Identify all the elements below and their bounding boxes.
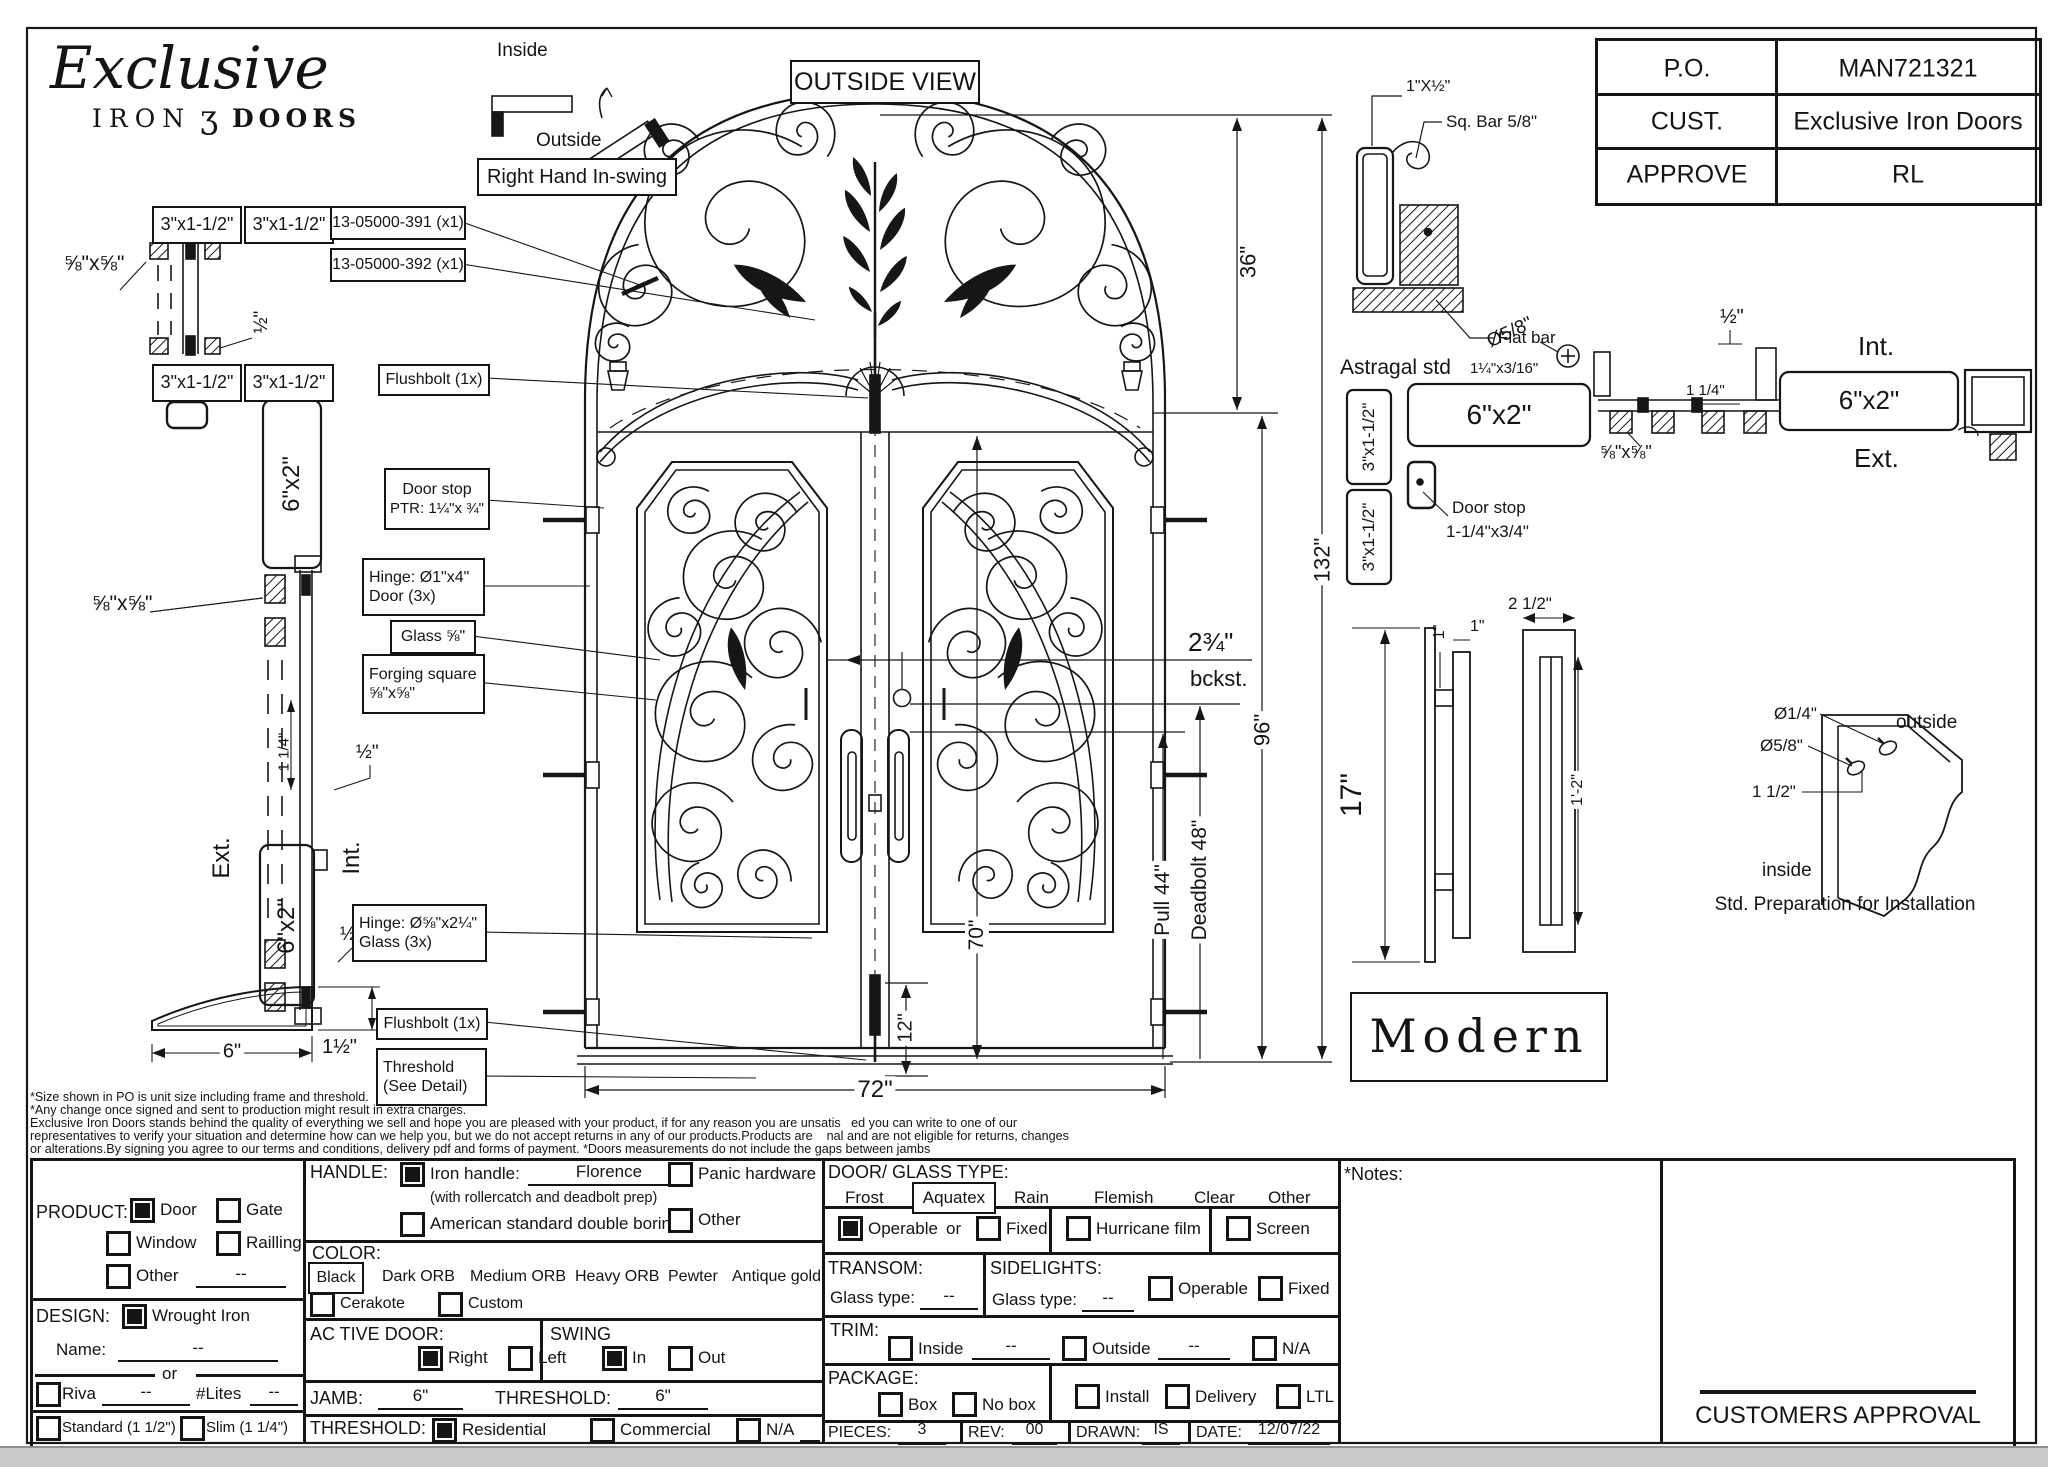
glass-clear-option[interactable]: Clear: [1194, 1188, 1235, 1208]
rd-ext: Ext.: [1854, 444, 1899, 474]
mullion-size-label: ⅝"x⅝": [64, 252, 124, 276]
package-delivery-label: Delivery: [1195, 1387, 1256, 1407]
disclaimer-line-5: or alterations.By signing you agree to o…: [30, 1143, 930, 1156]
threshold-na-value[interactable]: [800, 1418, 820, 1442]
callout-391: 13-05000-391 (x1): [330, 206, 466, 240]
rd-5858: ⅝"x⅝": [1600, 442, 1652, 463]
dim-bckst: bckst.: [1190, 666, 1247, 691]
handle-other-checkbox[interactable]: [668, 1208, 693, 1233]
color-black-option[interactable]: Black: [308, 1262, 364, 1294]
design-name-label: Name:: [56, 1340, 106, 1360]
astragal-dim-label: 1"X½": [1406, 78, 1450, 96]
color-cerakote-label: Cerakote: [340, 1295, 405, 1313]
package-box-label: Box: [908, 1395, 937, 1415]
section-label-2: 3"x1-1/2": [244, 206, 334, 244]
design-wrought-checkbox[interactable]: [122, 1304, 147, 1329]
swing-in-label: In: [632, 1348, 646, 1368]
door-stop-line1: Door stop: [386, 480, 488, 499]
threshold-na-label: N/A: [766, 1420, 794, 1440]
swing-type-label: Right Hand In-swing: [477, 158, 677, 196]
package-ltl-checkbox[interactable]: [1276, 1384, 1301, 1409]
glass-frost-option[interactable]: Frost: [845, 1188, 884, 1208]
design-slim-label: Slim (1 1/4"): [206, 1419, 288, 1436]
active-left-checkbox[interactable]: [508, 1346, 533, 1371]
package-nobox-label: No box: [982, 1395, 1036, 1415]
pieces-value[interactable]: 3: [898, 1421, 946, 1445]
glass-fixed-label: Fixed: [1006, 1219, 1048, 1239]
jamb-114-label: 1 1/4": [275, 733, 292, 772]
section-label-1: 3"x1-1/2": [152, 206, 242, 244]
mullion-half-label: ½": [251, 311, 273, 334]
dim-1-2: 1'-2": [1569, 771, 1587, 809]
hinge-glass-line2: Glass (3x): [359, 933, 432, 952]
threshold-commercial-checkbox[interactable]: [590, 1418, 615, 1443]
install-outside: outside: [1896, 712, 1957, 734]
hinge-door-line2: Door (3x): [369, 587, 436, 606]
color-custom-label: Custom: [468, 1295, 523, 1313]
fern-ornament: [834, 157, 917, 338]
swing-out-checkbox[interactable]: [668, 1346, 693, 1371]
pieces-label: PIECES:: [828, 1424, 891, 1442]
hurricane-checkbox[interactable]: [1066, 1216, 1091, 1241]
design-wrought-label: Wrought Iron: [152, 1306, 250, 1326]
int-label: Int.: [338, 841, 366, 874]
design-lites-label: #Lites: [196, 1384, 241, 1404]
handle-iron-label: Iron handle:: [430, 1164, 520, 1184]
design-lites-value[interactable]: --: [250, 1382, 298, 1406]
dim-deadbolt: Deadbolt 48": [1188, 817, 1212, 944]
active-left-label: Left: [538, 1348, 566, 1368]
trim-outside-value[interactable]: --: [1158, 1336, 1230, 1360]
rd-box2: 3"x1-1/2": [1359, 503, 1379, 572]
rev-value[interactable]: 00: [1012, 1421, 1057, 1445]
left-mullion-section: [120, 240, 252, 355]
color-custom-checkbox[interactable]: [438, 1292, 463, 1317]
trim-inside-value[interactable]: --: [972, 1336, 1050, 1360]
product-window-checkbox[interactable]: [106, 1231, 131, 1256]
swing-out-label: Out: [698, 1348, 725, 1368]
product-railing-checkbox[interactable]: [216, 1231, 241, 1256]
sidelights-operable-checkbox[interactable]: [1148, 1276, 1173, 1301]
package-install-label: Install: [1105, 1387, 1149, 1407]
rd-doorstop2: 1-1/4"x3/4": [1446, 522, 1529, 542]
approve-value: RL: [1892, 161, 1924, 190]
swing-label: SWING: [550, 1324, 611, 1345]
design-riva-checkbox[interactable]: [36, 1382, 61, 1407]
glass-aquatex-option[interactable]: Aquatex: [912, 1182, 996, 1214]
product-gate-checkbox[interactable]: [216, 1198, 241, 1223]
color-label: COLOR:: [312, 1243, 381, 1264]
handle-elevation: [1352, 613, 1583, 962]
install-caption: Std. Preparation for Installation: [1715, 894, 1976, 916]
door-handles-drawing: [841, 690, 911, 863]
hinge-glass-line1: Hinge: Ø⅝"x2¼": [359, 914, 477, 933]
po-value: MAN721321: [1839, 55, 1978, 84]
logo-ornament-icon: ʒ: [200, 98, 218, 136]
package-nobox-checkbox[interactable]: [952, 1392, 977, 1417]
dim-96: 96": [1249, 711, 1274, 749]
approve-label: APPROVE: [1627, 161, 1748, 190]
design-slim-checkbox[interactable]: [180, 1416, 205, 1441]
design-label: DESIGN:: [36, 1306, 110, 1327]
drawn-value[interactable]: IS: [1142, 1421, 1180, 1445]
cust-label: CUST.: [1651, 108, 1723, 137]
notes-label: *Notes:: [1344, 1164, 1403, 1185]
dim-1b: 1": [1470, 618, 1485, 636]
install-d14: Ø1/4": [1774, 704, 1817, 724]
product-railing-label: Railling: [246, 1233, 302, 1253]
handle-panic-checkbox[interactable]: [668, 1162, 693, 1187]
install-d58: Ø5/8": [1760, 736, 1803, 756]
threshold-commercial-label: Commercial: [620, 1420, 711, 1440]
sidelights-operable-label: Operable: [1178, 1279, 1248, 1299]
active-right-label: Right: [448, 1348, 488, 1368]
dim-36: 36": [1235, 246, 1260, 278]
dim-212: 2 1/2": [1508, 594, 1552, 614]
jamb-5858-label: ⅝"x⅝": [92, 592, 152, 616]
sidelights-fixed-label: Fixed: [1288, 1279, 1330, 1299]
disclaimer-line-3: Exclusive Iron Doors stands behind the q…: [30, 1117, 1017, 1130]
view-label: OUTSIDE VIEW: [790, 60, 980, 104]
logo-script: Exclusive: [50, 34, 329, 102]
forging-line1: Forging square: [369, 665, 477, 684]
signature-line[interactable]: [1700, 1390, 1976, 1394]
product-door-label: Door: [160, 1200, 197, 1220]
callout-hinge-door: Hinge: Ø1"x4" Door (3x): [362, 558, 485, 616]
glass-flemish-option[interactable]: Flemish: [1094, 1188, 1154, 1208]
callout-forging: Forging square ⅝"x⅝": [362, 654, 485, 714]
logo-iron: IRON: [92, 104, 191, 133]
dim-72: 72": [854, 1076, 895, 1104]
sidelights-fixed-checkbox[interactable]: [1258, 1276, 1283, 1301]
threshold-na-checkbox[interactable]: [736, 1418, 761, 1443]
sidelights-label: SIDELIGHTS:: [990, 1258, 1102, 1279]
rev-label: REV:: [968, 1424, 1005, 1442]
astragal-title: Astragal std: [1340, 356, 1451, 380]
glass-type-label: DOOR/ GLASS TYPE:: [828, 1162, 1009, 1183]
package-box-checkbox[interactable]: [878, 1392, 903, 1417]
swing-outside-label: Outside: [536, 130, 601, 152]
trim-na-checkbox[interactable]: [1252, 1336, 1277, 1361]
threshold-residential-checkbox[interactable]: [432, 1418, 457, 1443]
threshold-152-label: 1½": [322, 1036, 357, 1059]
active-right-checkbox[interactable]: [418, 1346, 443, 1371]
product-gate-label: Gate: [246, 1200, 283, 1220]
jamb-tube-label: 6"x2": [278, 456, 306, 512]
install-d112: 1 1/2": [1752, 782, 1796, 802]
customers-approval-label: CUSTOMERS APPROVAL: [1695, 1402, 1981, 1430]
rd-tube2: 6"x2": [1839, 386, 1899, 416]
rd-114: 1 1/4": [1686, 382, 1725, 399]
sidelights-glass-value[interactable]: --: [1082, 1288, 1134, 1312]
trim-inside-label: Inside: [918, 1339, 963, 1359]
transom-label: TRANSOM:: [828, 1258, 923, 1279]
threshold-line1: Threshold: [383, 1058, 454, 1077]
product-door-checkbox[interactable]: [130, 1198, 155, 1223]
color-heavyorb-option[interactable]: Heavy ORB: [575, 1268, 659, 1286]
rd-doorstop1: Door stop: [1452, 498, 1526, 518]
po-table: P.O. MAN721321 CUST. Exclusive Iron Door…: [1595, 38, 2042, 206]
disclaimer-line-2: *Any change once signed and sent to prod…: [30, 1104, 466, 1117]
threshold-6-label: 6": [220, 1041, 244, 1064]
package-label: PACKAGE:: [828, 1368, 919, 1389]
forging-line2: ⅝"x⅝": [369, 684, 415, 703]
threshold-tube-label: 6"x2": [273, 898, 301, 954]
swing-inside-label: Inside: [497, 40, 548, 62]
disclaimer-line-4: representatives to verify your situation…: [30, 1130, 1069, 1143]
section-label-4: 3"x1-1/2": [244, 364, 334, 402]
door-elevation: [543, 92, 1207, 1064]
date-label: DATE:: [1196, 1424, 1242, 1442]
dim-70: 70": [965, 917, 989, 954]
design-standard-checkbox[interactable]: [36, 1416, 61, 1441]
ext-label: Ext.: [208, 837, 236, 878]
callout-threshold: Threshold (See Detail): [376, 1048, 487, 1106]
threshold-label: THRESHOLD:: [310, 1418, 426, 1439]
trim-na-label: N/A: [1282, 1339, 1310, 1359]
disclaimer-line-1: *Size shown in PO is unit size including…: [30, 1091, 369, 1104]
glass-fixed-checkbox[interactable]: [976, 1216, 1001, 1241]
glass-operable-checkbox[interactable]: [838, 1216, 863, 1241]
handle-panic-label: Panic hardware: [698, 1164, 816, 1184]
install-inside: inside: [1762, 860, 1812, 882]
rd-int: Int.: [1858, 332, 1894, 362]
design-standard-label: Standard (1 1/2"): [62, 1419, 176, 1436]
callout-leaders: [150, 222, 868, 1078]
glass-rain-option[interactable]: Rain: [1014, 1188, 1049, 1208]
glass-other-option[interactable]: Other: [1268, 1188, 1311, 1208]
product-other-checkbox[interactable]: [106, 1264, 131, 1289]
rd-half: ½": [1720, 306, 1744, 329]
product-label: PRODUCT:: [36, 1202, 128, 1223]
handle-iron-checkbox[interactable]: [400, 1162, 425, 1187]
product-window-label: Window: [136, 1233, 196, 1253]
product-other-label: Other: [136, 1266, 179, 1286]
callout-hinge-glass: Hinge: Ø⅝"x2¼" Glass (3x): [352, 904, 487, 962]
dim-pull: Pull 44": [1151, 861, 1175, 939]
handle-american-label: American standard double boring: [430, 1214, 680, 1234]
package-install-checkbox[interactable]: [1075, 1384, 1100, 1409]
screen-checkbox[interactable]: [1226, 1216, 1251, 1241]
glass-or-label: or: [946, 1219, 961, 1239]
product-other-value[interactable]: --: [196, 1264, 286, 1288]
jamb-half-label: ½": [356, 742, 379, 764]
color-antiquegold-option[interactable]: Antique gold: [732, 1268, 821, 1286]
trim-inside-checkbox[interactable]: [888, 1336, 913, 1361]
hinge-door-line1: Hinge: Ø1"x4": [369, 568, 469, 587]
design-name-value[interactable]: --: [118, 1338, 278, 1362]
transom-glass-value[interactable]: --: [920, 1286, 978, 1310]
color-mediumorb-option[interactable]: Medium ORB: [470, 1268, 566, 1286]
handle-iron-value[interactable]: Florence: [528, 1162, 690, 1186]
callout-flushbolt-top: Flushbolt (1x): [378, 364, 490, 396]
rd-tube: 6"x2": [1466, 399, 1531, 431]
handle-american-checkbox[interactable]: [400, 1212, 425, 1237]
callout-door-stop: Door stop PTR: 1¼"x ¾": [384, 468, 490, 530]
trim-label: TRIM:: [830, 1320, 879, 1341]
po-label: P.O.: [1664, 55, 1711, 84]
callout-flushbolt-bottom: Flushbolt (1x): [376, 1008, 488, 1040]
dimension-lines: [585, 115, 1332, 1098]
dim-1a: 1": [1431, 625, 1449, 640]
door-stop-line2: PTR: 1¼"x ¾": [386, 500, 488, 518]
sidelights-glass-label: Glass type:: [992, 1290, 1077, 1310]
drawing-sheet: Exclusive IRON ʒ DOORS Inside Outside Ri…: [0, 0, 2048, 1467]
trim-outside-label: Outside: [1092, 1339, 1151, 1359]
trim-outside-checkbox[interactable]: [1062, 1336, 1087, 1361]
color-pewter-option[interactable]: Pewter: [668, 1268, 718, 1286]
dim-132: 132": [1309, 535, 1334, 586]
handle-other-label: Other: [698, 1210, 741, 1230]
color-darkorb-option[interactable]: Dark ORB: [382, 1268, 455, 1286]
design-name-box: Modern: [1350, 992, 1608, 1082]
cust-value: Exclusive Iron Doors: [1793, 108, 2022, 137]
logo-doors: DOORS: [232, 104, 361, 133]
threshold-line2: (See Detail): [383, 1077, 467, 1096]
threshold-residential-label: Residential: [462, 1420, 546, 1440]
design-riva-label: Riva: [62, 1384, 96, 1404]
section-label-3: 3"x1-1/2": [152, 364, 242, 402]
screen-label: Screen: [1256, 1219, 1310, 1239]
dim-12: 12": [895, 1010, 918, 1045]
astragal-size: 1¼"x3/16": [1470, 360, 1538, 377]
design-riva-value[interactable]: --: [102, 1382, 190, 1406]
swing-in-checkbox[interactable]: [602, 1346, 627, 1371]
date-value[interactable]: 12/07/22: [1248, 1421, 1330, 1445]
dim-bckst-num: 2¾": [1188, 628, 1233, 658]
active-door-label: AC TIVE DOOR:: [310, 1324, 444, 1345]
jamb-threshold-label: THRESHOLD:: [495, 1388, 611, 1409]
package-delivery-checkbox[interactable]: [1165, 1384, 1190, 1409]
jamb-label: JAMB:: [310, 1388, 363, 1409]
dim-17: 17": [1335, 773, 1370, 817]
install-detail: [1802, 714, 1962, 916]
drawn-label: DRAWN:: [1076, 1424, 1140, 1442]
jamb-value[interactable]: 6": [378, 1386, 463, 1410]
package-ltl-label: LTL: [1306, 1387, 1334, 1407]
bottom-scrollbar[interactable]: [0, 1446, 2048, 1467]
astragal-detail: [1353, 96, 1494, 338]
astragal-sqbar-label: Sq. Bar 5/8": [1446, 112, 1537, 132]
hurricane-label: Hurricane film: [1096, 1219, 1201, 1239]
handle-iron-note: (with rollercatch and deadbolt prep): [430, 1190, 657, 1206]
callout-glass: Glass ⅝": [390, 620, 476, 654]
callout-392: 13-05000-392 (x1): [330, 248, 466, 282]
transom-glass-label: Glass type:: [830, 1288, 915, 1308]
color-cerakote-checkbox[interactable]: [310, 1292, 335, 1317]
handle-label: HANDLE:: [310, 1162, 388, 1183]
design-or-label: or: [162, 1364, 177, 1384]
rd-box1: 3"x1-1/2": [1359, 403, 1379, 472]
jamb-threshold-value[interactable]: 6": [618, 1386, 708, 1410]
glass-operable-label: Operable: [868, 1219, 938, 1239]
